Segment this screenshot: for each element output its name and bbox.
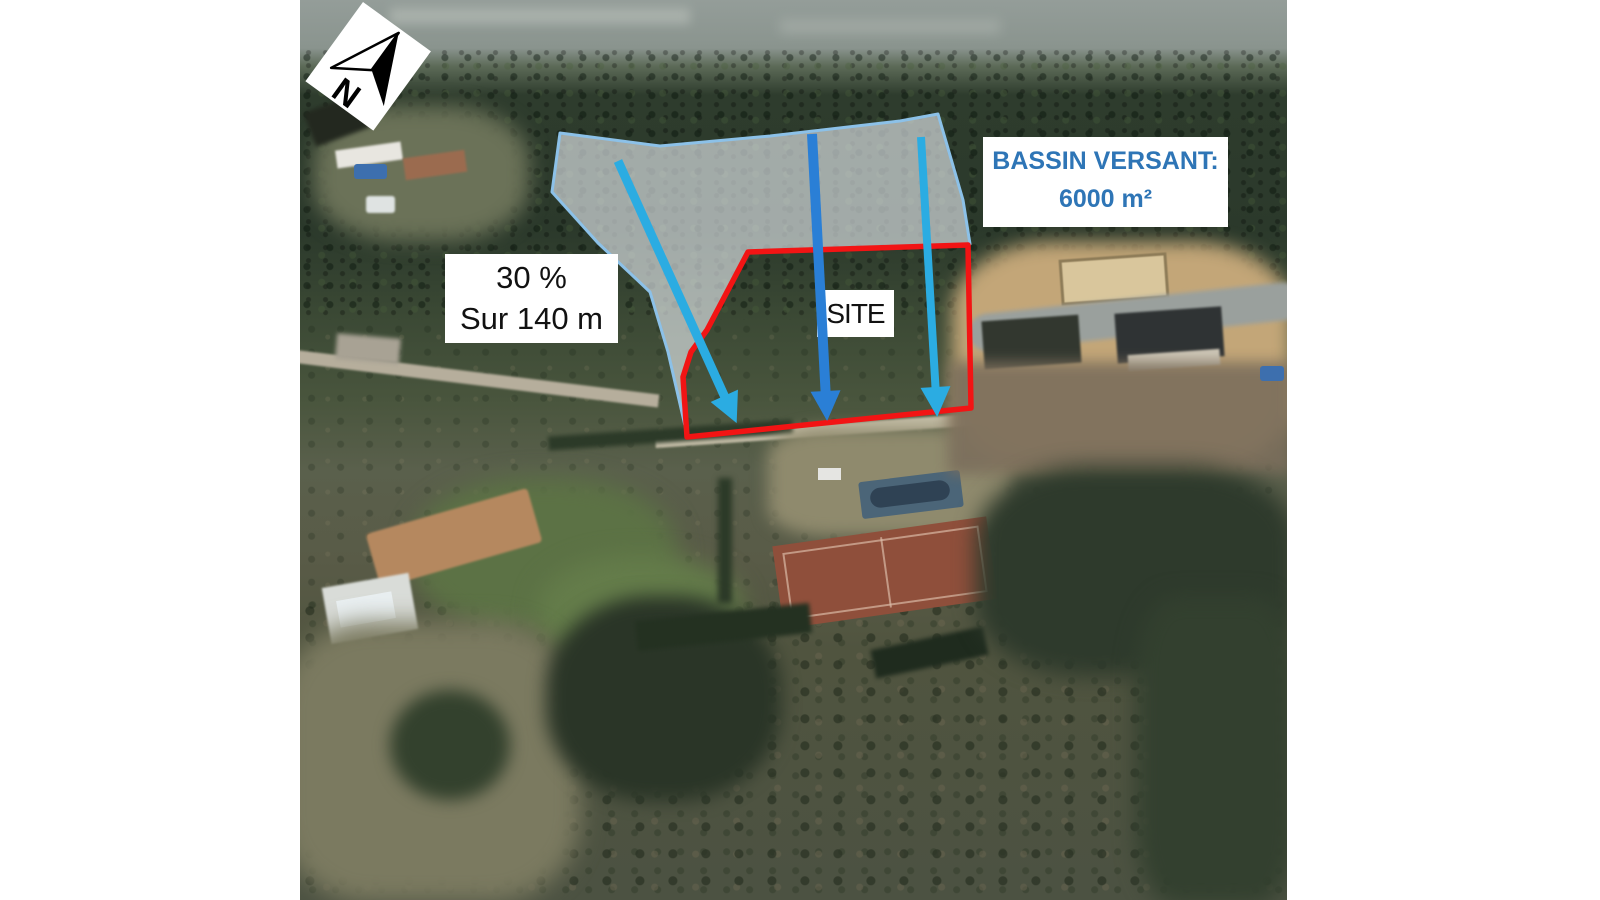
swimming-pool — [1260, 366, 1284, 381]
watershed-line1: BASSIN VERSANT: — [983, 142, 1228, 180]
site-label: SITE — [817, 290, 894, 337]
tree-cluster — [390, 690, 510, 800]
slope-line2: Sur 140 m — [445, 298, 618, 339]
aerial-photo — [300, 0, 1287, 900]
hedge — [870, 626, 989, 678]
forest — [1136, 596, 1287, 900]
swimming-pool — [366, 196, 395, 213]
bare-tree-band — [948, 362, 1287, 474]
ridge-buildings — [780, 20, 1000, 33]
hedge — [718, 478, 732, 603]
watershed-line2: 6000 m² — [983, 180, 1228, 218]
annotated-aerial-map: 30 % Sur 140 m SITE BASSIN VERSANT: 6000… — [0, 0, 1600, 900]
swimming-pool — [354, 164, 387, 179]
cabana — [818, 468, 841, 480]
parking-area — [335, 333, 401, 364]
ridge-buildings — [390, 8, 690, 24]
site-label-box: SITE — [817, 290, 894, 337]
watershed-label-box: BASSIN VERSANT: 6000 m² — [983, 137, 1228, 227]
slope-label-box: 30 % Sur 140 m — [445, 254, 618, 343]
slope-line1: 30 % — [445, 257, 618, 298]
